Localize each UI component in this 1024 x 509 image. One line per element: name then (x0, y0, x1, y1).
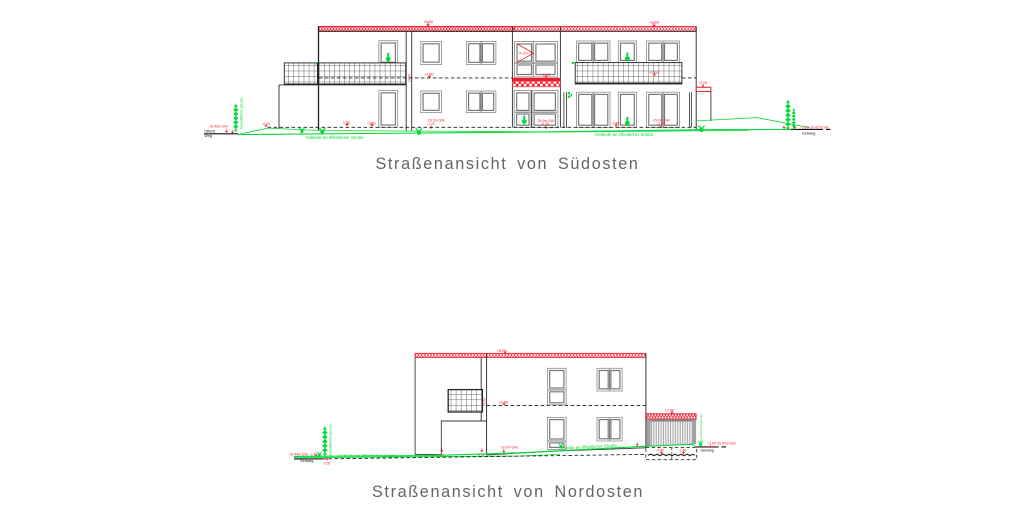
svg-text:-29.44m GW. -0.7: -29.44m GW. -0.7 (289, 452, 316, 456)
svg-text:Straßenansicht von Südosten: Straßenansicht von Südosten (375, 155, 639, 173)
svg-text:-0.10/-29.47m GW.: -0.10/-29.47m GW. (801, 125, 830, 129)
svg-text:-0.70: -0.70 (262, 122, 270, 126)
svg-text:Gelände an öffentlicher Straße: Gelände an öffentlicher Straße (306, 135, 365, 140)
svg-text:14.50: 14.50 (483, 398, 487, 406)
svg-text:Grundstücks-grenze: Grundstücks-grenze (699, 414, 703, 442)
svg-text:+2.05: +2.05 (665, 409, 675, 413)
svg-text:+2.50: +2.50 (424, 73, 434, 77)
svg-text:-0.10/-29.05m GW.: -0.10/-29.05m GW. (708, 442, 737, 446)
svg-text:-0.60: -0.60 (657, 448, 664, 452)
svg-text:Straßenansicht von Nordosten: Straßenansicht von Nordosten (372, 483, 644, 501)
svg-text:Öffentl.: Öffentl. (205, 130, 217, 134)
svg-text:+6.50: +6.50 (649, 20, 660, 25)
svg-text:+0.00: +0.00 (367, 121, 376, 125)
svg-text:-29.0m GW.: -29.0m GW. (500, 446, 518, 450)
svg-text:+2.50: +2.50 (649, 71, 659, 75)
svg-text:+6.50: +6.50 (423, 19, 434, 24)
svg-text:-1.00: -1.00 (679, 448, 686, 452)
svg-text:Gelände an öffentlicher Straße: Gelände an öffentlicher Straße (595, 132, 654, 137)
svg-text:Gehweg: Gehweg (300, 459, 313, 463)
svg-text:Gehweg: Gehweg (701, 449, 714, 453)
svg-text:-29.46m GW.: -29.46m GW. (209, 125, 229, 129)
svg-text:Grundstücks-grenze: Grundstücks-grenze (240, 97, 244, 129)
svg-text:Gelände an öffentlicher Straße: Gelände an öffentlicher Straße (338, 453, 397, 458)
svg-text:-0.35: -0.35 (541, 122, 549, 126)
svg-text:Weg: Weg (205, 134, 212, 138)
svg-text:Gehweg: Gehweg (802, 132, 815, 136)
svg-text:14.50: 14.50 (408, 74, 412, 82)
svg-text:Grundstücks-grenze: Grundstücks-grenze (329, 424, 333, 456)
svg-text:+0.5m: +0.5m (519, 52, 529, 56)
svg-text:-0.55: -0.55 (342, 121, 350, 125)
svg-text:-0.35: -0.35 (612, 121, 620, 125)
svg-text:-0.55: -0.55 (323, 462, 330, 466)
